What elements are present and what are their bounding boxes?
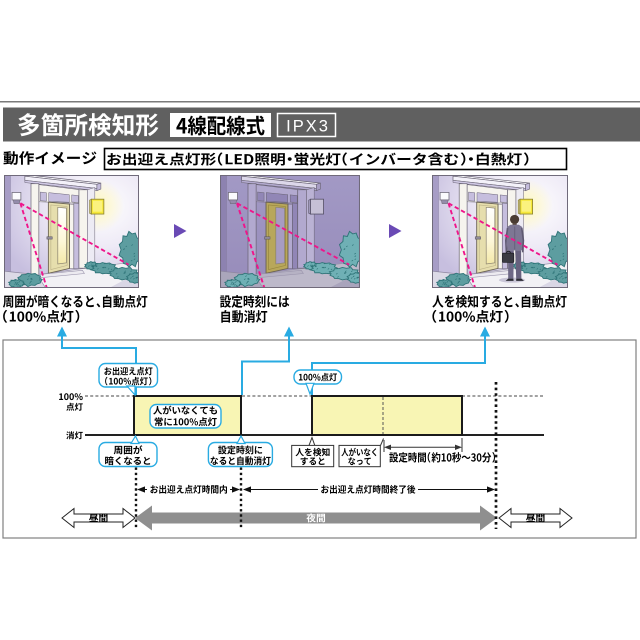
svg-text:IPX3: IPX3 bbox=[286, 118, 330, 136]
